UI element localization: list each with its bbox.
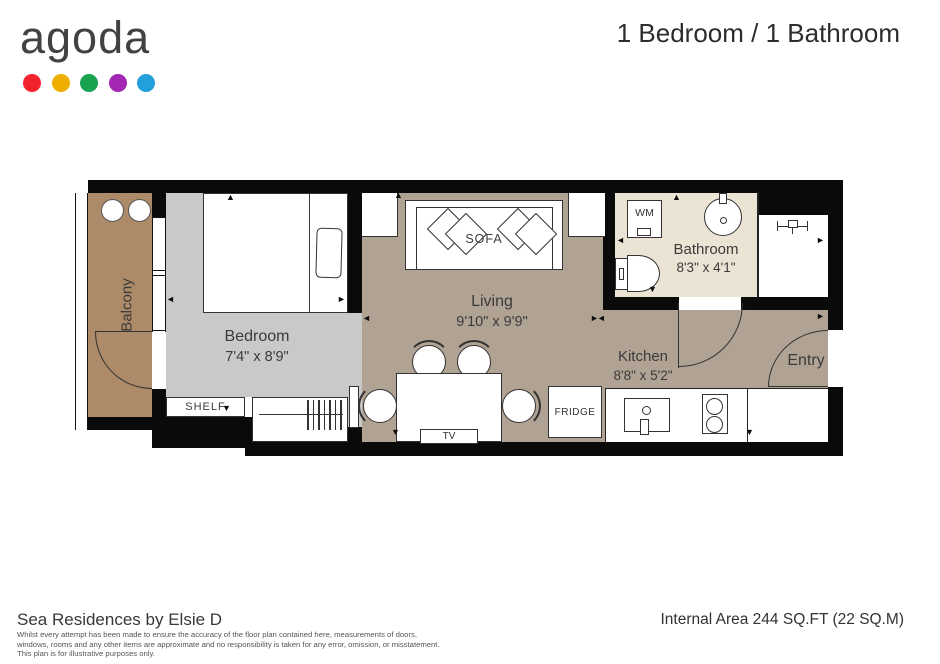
bedroom-label: Bedroom 7'4" x 8'9" [225,327,290,367]
balcony-stool [128,199,151,222]
dimension-arrow: ▼ [222,404,231,413]
dimension-arrow: ► [337,295,346,304]
entry-door-opening [828,330,843,387]
sofa-label: SOFA [465,232,502,246]
wall-window-lower [152,389,166,419]
bathroom-door-leaf [678,303,679,368]
dimension-arrow: ▲ [672,193,681,202]
balcony-label: Balcony [119,278,136,331]
wall-bottom [245,442,843,456]
toilet-button-icon [619,268,624,280]
burner-icon [706,416,723,433]
wardrobe [252,397,348,442]
disclaimer: Whilst every attempt has been made to en… [17,630,440,659]
logo-dot-red [23,74,41,92]
dimension-arrow: ▲ [394,191,403,200]
fridge: FRIDGE [548,386,602,438]
internal-area: Internal Area 244 SQ.FT (22 SQ.M) [660,611,904,629]
dimension-arrow: ► [816,236,825,245]
wall-window-upper [152,193,166,217]
sink-drain-icon [720,217,727,224]
wall-top [88,180,843,193]
window-tick [152,217,166,218]
logo-dot-green [80,74,98,92]
kitchen-sink [624,398,670,432]
dimension-arrow: ▼ [648,285,657,294]
bathroom-label: Bathroom 8'3" x 4'1" [673,241,738,277]
shelf: SHELF [166,397,245,417]
sink-drain-icon [642,406,651,415]
hanger-icon [335,400,337,430]
living-label: Living 9'10" x 9'9" [456,292,527,332]
bed-fold-line [309,193,310,313]
wall-bedroom-living [348,180,362,313]
wall-shelf-block [152,417,252,448]
wall-balcony-bottom [88,417,152,430]
living-recess-right [568,193,605,237]
dimension-arrow: ◄ [616,236,625,245]
sink-tap-icon [719,193,727,204]
agoda-logo: agoda [20,12,150,64]
logo-dot-blue [137,74,155,92]
wm-door-icon [637,228,651,236]
page-title: 1 Bedroom / 1 Bathroom [617,18,900,49]
balcony-stool [101,199,124,222]
burner-icon [706,398,723,415]
disclaimer-line: windows, rooms and any other items are a… [17,640,440,650]
window-tick [152,270,166,271]
entry-label: Entry [787,352,824,370]
dimension-arrow: ►◄ [590,314,604,323]
washing-machine: WM [627,200,662,238]
chair-icon [363,389,397,423]
living-recess-left [362,193,398,237]
dimension-arrow: ► [816,312,825,321]
property-name: Sea Residences by Elsie D [17,610,222,630]
hanger-icon [329,400,331,430]
dimension-arrow: ▲ [226,193,235,202]
disclaimer-line: Whilst every attempt has been made to en… [17,630,440,640]
floorplan-page: agoda 1 Bedroom / 1 Bathroom [0,0,940,664]
bathroom-closet-divider [757,193,759,297]
sofa: SOFA [405,200,563,270]
window-tick [152,275,166,276]
hanger-icon [313,400,315,430]
sink-faucet-icon [640,419,649,435]
balcony-door-opening [152,332,166,389]
dimension-arrow: ▼ [391,428,400,437]
bed-pillow [315,228,342,279]
dimension-arrow: ◄ [166,295,175,304]
wall-closet-top [757,180,833,215]
dimension-arrow: ◄ [362,314,371,323]
hanger-icon [307,400,309,430]
hanger-icon [318,400,320,430]
hanger-icon [324,400,326,430]
hanging-rail-icon [777,220,809,236]
chair-icon [502,389,536,423]
balcony-railing [75,193,88,430]
logo-dot-purple [109,74,127,92]
disclaimer-line: This plan is for illustrative purposes o… [17,649,440,659]
kitchen-label: Kitchen 8'8" x 5'2" [613,347,672,385]
tv: TV [420,429,478,444]
entry-door-leaf [768,386,828,387]
dimension-arrow: ▼ [745,428,754,437]
wm-label: WM [635,207,654,219]
logo-dot-yellow [52,74,70,92]
hanger-icon [340,400,342,430]
dimension-arrow: ▲ [744,302,753,311]
window-tick [152,330,166,331]
stove [702,394,728,434]
wall-right [828,180,843,456]
